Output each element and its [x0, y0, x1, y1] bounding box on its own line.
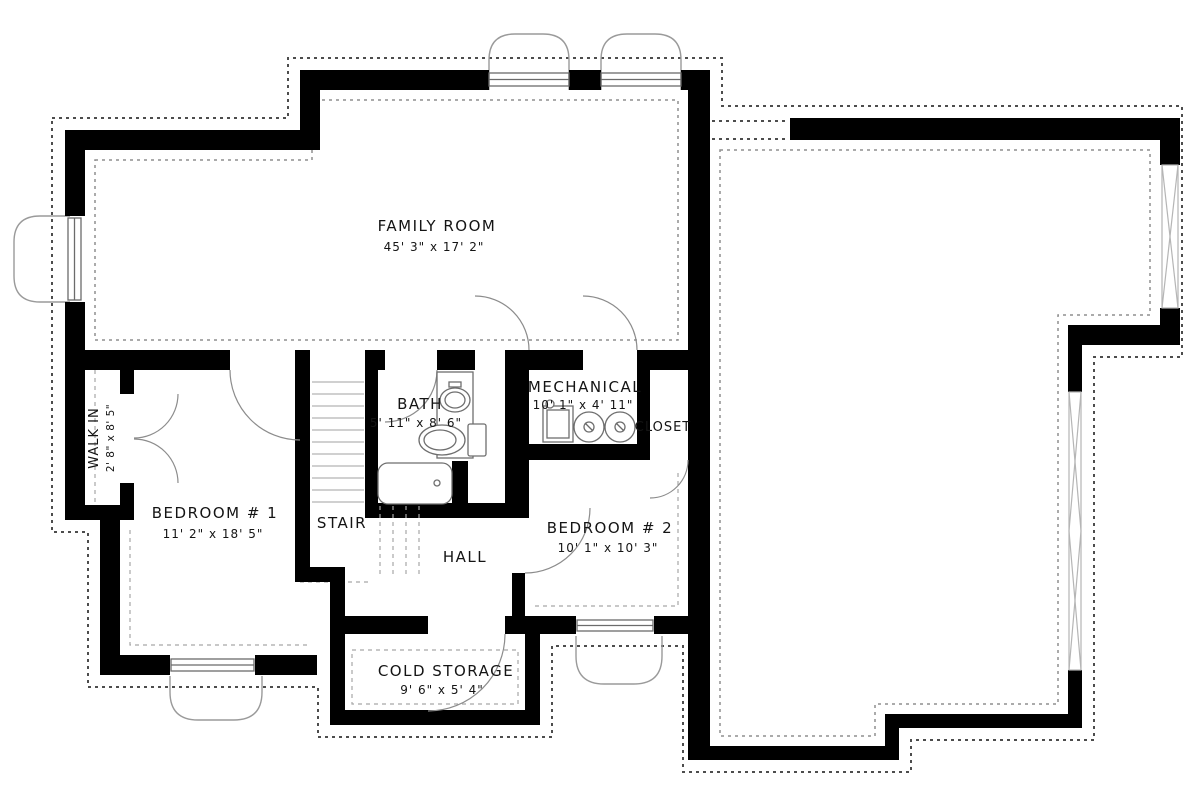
wall-right-step	[1068, 325, 1180, 345]
wall-center-divider	[688, 70, 710, 760]
room-dims-bath: 5' 11" x 8' 6"	[370, 416, 462, 430]
bedroom2-inner-dash	[535, 470, 678, 606]
window-left	[68, 218, 81, 300]
window-well-bedroom1	[170, 676, 262, 720]
room-label-bath: BATH	[397, 395, 443, 413]
water-heater-1	[574, 412, 604, 442]
windows	[68, 73, 1178, 671]
wall-bedroom2-west-a	[512, 460, 525, 508]
wall-left-lower	[65, 302, 85, 520]
wall-top-right	[790, 118, 1165, 140]
door-arc-closet	[650, 460, 688, 498]
window-bedroom2	[577, 620, 653, 631]
window-right-upper-x	[1162, 165, 1178, 308]
window-well-left	[14, 216, 70, 302]
wall-bath-south	[365, 503, 525, 518]
wall-familyroom-south-e	[529, 350, 583, 370]
wall-familyroom-south-d	[437, 350, 475, 370]
room-label-family-room: FAMILY ROOM	[378, 217, 497, 235]
room-dims-cold-storage: 9' 6" x 5' 4"	[400, 683, 484, 697]
wall-top-mid-b	[569, 70, 601, 90]
door-arc-walkin-top	[134, 394, 178, 438]
wall-coldstorage-right	[525, 634, 540, 725]
right-area-inner-dash	[720, 150, 1150, 736]
door-arc-mechanical	[583, 296, 637, 350]
wall-top-left	[65, 130, 320, 150]
basement-floor-plan: FAMILY ROOM 45' 3" x 17' 2" WALK IN 2' 8…	[0, 0, 1200, 800]
room-label-closet: CLOSET	[635, 420, 692, 435]
wall-left-lower2	[100, 505, 120, 675]
wall-walkin-east-b	[120, 483, 134, 520]
window-well-top-2	[601, 34, 681, 90]
window-top-2	[601, 73, 681, 86]
room-label-cold-storage: COLD STORAGE	[378, 662, 514, 680]
room-dims-walk-in: 2' 8" x 8' 5"	[105, 404, 117, 472]
room-dims-mechanical: 10' 1" x 4' 11"	[533, 398, 634, 412]
room-label-mechanical: MECHANICAL	[528, 378, 642, 396]
room-dims-bedroom-1: 11' 2" x 18' 5"	[163, 527, 264, 541]
window-well-top-1	[489, 34, 569, 90]
window-well-bedroom2	[576, 636, 662, 684]
wall-bedroom1-bottom-b	[255, 655, 317, 675]
room-label-bedroom-1: BEDROOM # 1	[152, 504, 278, 522]
door-arc-bedroom1	[230, 370, 300, 440]
wall-bottom-mid	[695, 746, 899, 760]
wall-mechanical-south	[505, 444, 650, 460]
wall-bedroom2-west-b	[512, 573, 525, 616]
room-dims-family-room: 45' 3" x 17' 2"	[384, 240, 485, 254]
door-arc-familyroom-1	[475, 296, 529, 350]
water-heater-2	[605, 412, 635, 442]
wall-familyroom-south-a	[65, 350, 230, 370]
wall-bedroom1-bottom-a	[100, 655, 170, 675]
room-label-hall: HALL	[443, 548, 487, 566]
room-label-stair: STAIR	[317, 514, 367, 532]
wall-hall-south-b	[505, 616, 576, 634]
room-dims-bedroom-2: 10' 1" x 10' 3"	[558, 541, 659, 555]
window-bedroom1	[171, 659, 254, 671]
wall-stair-bottom-stub	[295, 567, 345, 582]
wall-tub-pillar	[452, 461, 468, 505]
window-right-lower-x	[1069, 392, 1081, 670]
wall-right-upper-a	[1160, 118, 1180, 165]
window-top-1	[489, 73, 569, 86]
wall-coldstorage-bottom	[330, 710, 540, 725]
door-arc-walkin-bottom	[134, 439, 178, 483]
wall-familyroom-south-f	[637, 350, 710, 370]
wall-walkin-east-a	[120, 350, 134, 394]
floor-plan-canvas: FAMILY ROOM 45' 3" x 17' 2" WALK IN 2' 8…	[0, 0, 1200, 800]
wall-right-lower-a	[1068, 345, 1082, 392]
wall-stair-left	[295, 350, 310, 582]
wall-coldstorage-left	[330, 567, 345, 725]
wall-hall-south-a	[345, 616, 428, 634]
wall-top-mid-a	[300, 70, 489, 90]
wall-bedroom2-south	[654, 616, 688, 634]
bedroom1-inner-dash	[130, 530, 307, 645]
bathtub	[378, 463, 452, 504]
room-label-bedroom-2: BEDROOM # 2	[547, 519, 673, 537]
room-label-walk-in: WALK IN	[87, 407, 102, 469]
wall-bottom-right	[885, 714, 1082, 728]
